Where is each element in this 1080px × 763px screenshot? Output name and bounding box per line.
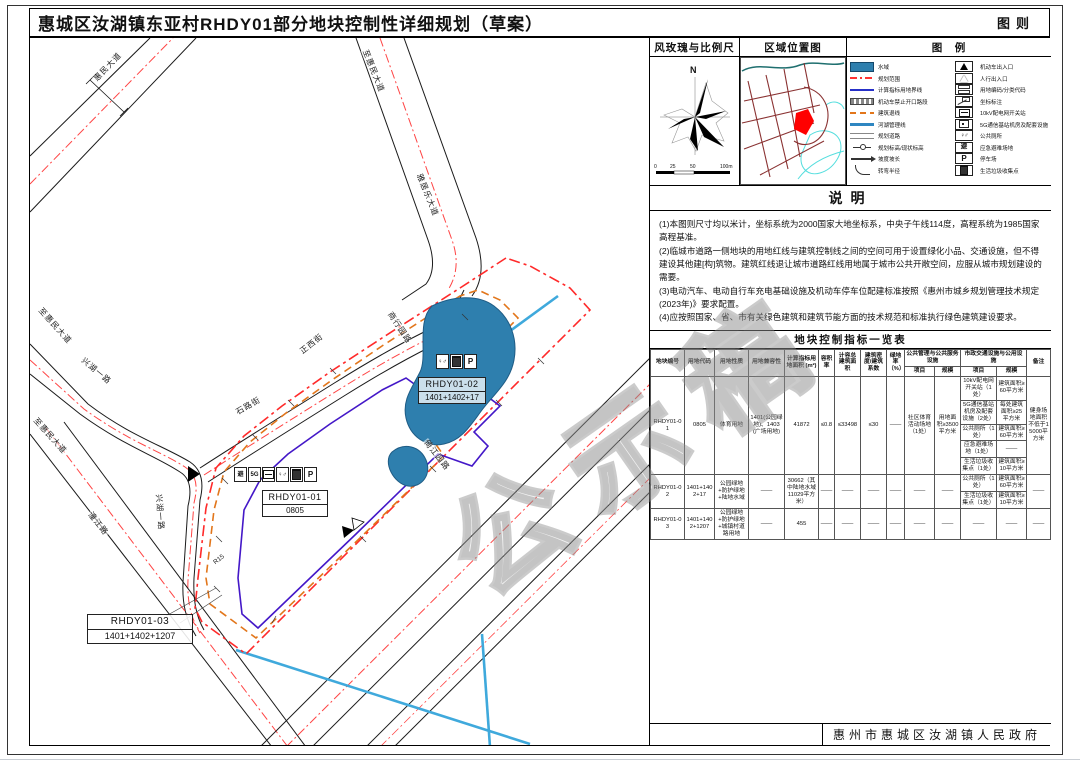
- location-map-body: [740, 57, 846, 185]
- cell-muni-item: 10kV配电网开关站（1处）: [961, 376, 997, 400]
- cell-public-scale: ——: [935, 475, 961, 509]
- legend-item: 机动车禁止开口路段: [849, 96, 948, 108]
- waste-point-icon: [951, 165, 977, 176]
- plan-map: 惠民大道 至惠民大道 雅居乐大道 至惠民大道 兴湖一路 兴湖一路 至惠民大道 潼…: [30, 38, 650, 745]
- legend-item: 5G通信基站机房及配套设施: [951, 119, 1050, 131]
- cell-green: ——: [887, 475, 905, 509]
- col-header: 计容总建筑面积: [835, 350, 861, 377]
- cell-gfa: ——: [835, 509, 861, 540]
- legend-item: 生活垃圾收集点: [951, 165, 1050, 177]
- legend-right-column: 机动车出入口 人行出入口 用地编码/分类代码 坐标标注 10kV配电网开关站 5…: [949, 57, 1051, 185]
- windrose-body: N 0: [650, 57, 739, 185]
- location-map-drawing: [740, 57, 846, 185]
- bottom-rule: [0, 759, 1080, 760]
- legend-item: P停车场: [951, 153, 1050, 165]
- page-title: 惠城区汝湖镇东亚村RHDY01部分地块控制性详细规划（草案）: [30, 10, 543, 35]
- parcel-label-rhdy01-03: RHDY01-03 1401+1402+1207: [87, 614, 193, 644]
- cell-compat: ——: [749, 509, 785, 540]
- cell-far: ≤0.8: [819, 376, 835, 474]
- col-header: 计算指标用地面积 (m²): [785, 350, 819, 377]
- footer-strip: 惠州市惠城区汝湖镇人民政府: [650, 723, 1051, 745]
- sub-header: 规模: [935, 366, 961, 376]
- cell-muni-scale: 建筑面积≥60平方米: [997, 424, 1027, 441]
- location-map-title: 区域位置图: [740, 38, 846, 57]
- col-header: 用地代码: [685, 350, 715, 377]
- 5g-station-icon: [951, 119, 977, 130]
- col-header: 地块编号: [651, 350, 685, 377]
- sheet-type-label: 图则: [997, 13, 1049, 32]
- no-opening-segment-icon: [849, 98, 875, 105]
- cell-area: 41872: [785, 376, 819, 474]
- 5g-station-icon: 5G: [248, 467, 261, 482]
- cell-muni-scale: 建筑面积≥10平方米: [997, 492, 1027, 509]
- scale-bar: 0 25 50 100m: [654, 164, 733, 174]
- legend-item: 避应急避难场地: [951, 142, 1050, 154]
- parcel-id: RHDY01-02: [419, 378, 485, 392]
- legend-item: 转弯半径: [849, 165, 948, 177]
- notes-title: 说明: [650, 186, 1051, 211]
- table-row: RHDY01-02 1401+1402+17 公园绿地+防护绿地+陆地水域 ——…: [651, 475, 1051, 492]
- facility-icons-rhdy01-02: ♀♂ P: [436, 354, 477, 369]
- cell-muni-item: 公共厕所（1处）: [961, 424, 997, 441]
- issuing-authority: 惠州市惠城区汝湖镇人民政府: [822, 724, 1051, 745]
- note-line: (4)应按照国家、省、市有关绿色建筑和建筑节能方面的技术规范和标准执行绿色建筑建…: [659, 311, 1042, 324]
- col-header: 备注: [1027, 350, 1051, 377]
- scale-tick: 50: [690, 164, 696, 170]
- sub-header: 规模: [997, 366, 1027, 376]
- road-centerline: [30, 360, 200, 633]
- right-panel: 风玫瑰与比例尺 N: [650, 38, 1051, 745]
- cell-far: ——: [819, 475, 835, 509]
- cell-remark: ——: [1027, 509, 1051, 540]
- cell-muni-scale: ——: [997, 441, 1027, 458]
- parcel-label-rhdy01-02: RHDY01-02 1401+1402+17: [418, 377, 486, 404]
- table-area: 地块编号 用地代码 用地性质 用地兼容性 计算指标用地面积 (m²) 容积率 计…: [650, 349, 1051, 723]
- setback-line-icon: [849, 112, 875, 114]
- planned-road-icon: [849, 133, 875, 139]
- public-toilet-icon: ♀♂: [951, 130, 977, 141]
- legend-item: 规划范围: [849, 73, 948, 85]
- cell-muni-item: ——: [961, 509, 997, 540]
- cell-code: 1401+1402+1207: [685, 509, 715, 540]
- panel-top-row: 风玫瑰与比例尺 N: [650, 38, 1051, 186]
- col-header: 绿地率（%）: [887, 350, 905, 377]
- cell-code: 0805: [685, 376, 715, 474]
- road-xinghu-yilu: [30, 344, 204, 636]
- legend-item: 规划道路: [849, 130, 948, 142]
- location-map-cell: 区域位置图: [740, 38, 847, 185]
- legend-item: 建筑退线: [849, 107, 948, 119]
- cell-green: ——: [887, 509, 905, 540]
- legend-item: 用地编码/分类代码: [951, 84, 1050, 96]
- power-switch-station-icon: [262, 467, 275, 482]
- legend-item: 人行出入口: [951, 73, 1050, 85]
- windrose-title: 风玫瑰与比例尺: [650, 38, 739, 57]
- sub-header: 项目: [961, 366, 997, 376]
- road-label: 兴湖一路: [154, 493, 165, 531]
- cell-remark: ——: [1027, 475, 1051, 509]
- legend-item: 机动车出入口: [951, 61, 1050, 73]
- legend-item: ♀♂公共厕所: [951, 130, 1050, 142]
- public-toilet-icon: ♀♂: [276, 467, 289, 482]
- width-dimension: [86, 76, 128, 116]
- parcel-code-icon: [951, 84, 977, 95]
- col-header-group: 公共管理与公共服务设施: [905, 350, 961, 367]
- col-header: 容积率: [819, 350, 835, 377]
- parking-icon: P: [951, 153, 977, 164]
- note-line: (2)临城市道路一侧地块的用地红线与建筑控制线之间的空间可用于设置绿化小品、交通…: [659, 245, 1042, 285]
- control-indicator-table: 地块编号 用地代码 用地性质 用地兼容性 计算指标用地面积 (m²) 容积率 计…: [650, 349, 1051, 540]
- road-centerline: [286, 384, 650, 745]
- water-swatch: [849, 62, 875, 72]
- cell-muni-item: 生活垃圾收集点（1处）: [961, 458, 997, 475]
- elevation-mark-icon: [849, 143, 875, 151]
- cell-area: 30662（其中陆地水域11029平方米）: [785, 475, 819, 509]
- windrose-drawing: N 0: [650, 57, 739, 185]
- cell-muni-item: 应急避难场地（1处）: [961, 441, 997, 458]
- cell-public-item: ——: [905, 475, 935, 509]
- cell-muni-scale: 建筑面积≥60平方米: [997, 475, 1027, 492]
- cell-compat: 1401(公园绿地)、1403(广场用地): [749, 376, 785, 474]
- parcel-id: RHDY01-03: [88, 615, 192, 630]
- col-header: 用地性质: [715, 350, 749, 377]
- parcel-id: RHDY01-01: [263, 491, 327, 505]
- table-row: RHDY01-03 1401+1402+1207 公园绿地+防护绿地+城镇村道路…: [651, 509, 1051, 540]
- scale-tick: 0: [654, 164, 657, 170]
- legend-item: 计算指标用地界线: [849, 84, 948, 96]
- cell-use: 公园绿地+防护绿地+城镇村道路用地: [715, 509, 749, 540]
- legend-title: 图 例: [847, 38, 1051, 57]
- cell-muni-scale: 建筑面积≥10平方米: [997, 458, 1027, 475]
- col-header-group: 市政交通设施与公用设施: [961, 350, 1027, 367]
- cell-muni-scale: 每处建筑面积≥25平方米: [997, 400, 1027, 424]
- cell-use: 公园绿地+防护绿地+陆地水域: [715, 475, 749, 509]
- cell-density: ——: [861, 475, 887, 509]
- cell-public-item: 社区体育活动场地（1处）: [905, 376, 935, 474]
- cell-area: 455: [785, 509, 819, 540]
- parcel-code: 0805: [263, 505, 327, 517]
- river-line-icon: [849, 123, 875, 126]
- vehicle-entry-icon: [951, 61, 977, 72]
- cell-muni-item: 公共厕所（1处）: [961, 475, 997, 492]
- legend-body: 水域 规划范围 计算指标用地界线 机动车禁止开口路段 建筑退线 河湖管理线 规划…: [847, 57, 1051, 185]
- windrose-petals: [668, 79, 726, 151]
- scale-tick: 100m: [720, 164, 733, 170]
- note-line: (3)电动汽车、电动自行车充电基础设施及机动车停车位配建标准按照《惠州市城乡规划…: [659, 285, 1042, 312]
- cell-parcel-id: RHDY01-02: [651, 475, 685, 509]
- notes-body: (1)本图则尺寸均以米计，坐标系统为2000国家大地坐标系，中央子午线114度，…: [650, 211, 1051, 331]
- cell-far: ——: [819, 509, 835, 540]
- table-header-row: 地块编号 用地代码 用地性质 用地兼容性 计算指标用地面积 (m²) 容积率 计…: [651, 350, 1051, 367]
- cell-compat: ——: [749, 475, 785, 509]
- switch-station-icon: [951, 107, 977, 118]
- cell-code: 1401+1402+17: [685, 475, 715, 509]
- parcel-code: 1401+1402+17: [419, 392, 485, 404]
- cell-use: 体育用地: [715, 376, 749, 474]
- scale-tick: 25: [670, 164, 676, 170]
- cell-gfa: ≤33498: [835, 376, 861, 474]
- legend-item: 河湖管理线: [849, 119, 948, 131]
- waste-collection-icon: [450, 354, 463, 369]
- title-bar: 惠城区汝湖镇东亚村RHDY01部分地块控制性详细规划（草案） 图则: [29, 8, 1050, 37]
- plan-boundary-line-icon: [849, 77, 875, 79]
- parcel-label-rhdy01-01: RHDY01-01 0805: [262, 490, 328, 517]
- cell-density: ——: [861, 509, 887, 540]
- cell-muni-scale: 建筑面积≥60平方米: [997, 376, 1027, 400]
- parcel-code: 1401+1402+1207: [88, 630, 192, 643]
- cell-density: ≤30: [861, 376, 887, 474]
- cell-green: ——: [887, 376, 905, 474]
- cell-gfa: ——: [835, 475, 861, 509]
- legend-item: 10kV配电网开关站: [951, 107, 1050, 119]
- note-line: (1)本图则尺寸均以米计，坐标系统为2000国家大地坐标系，中央子午线114度，…: [659, 218, 1042, 245]
- cell-public-item: ——: [905, 509, 935, 540]
- indicator-line-icon: [849, 89, 875, 91]
- legend-left-column: 水域 规划范围 计算指标用地界线 机动车禁止开口路段 建筑退线 河湖管理线 规划…: [847, 57, 949, 185]
- parking-icon: P: [304, 467, 317, 482]
- emergency-shelter-icon: 避: [951, 142, 977, 153]
- parking-icon: P: [464, 354, 477, 369]
- table-title: 地块控制指标一览表: [650, 331, 1051, 349]
- cell-muni-scale: ——: [997, 509, 1027, 540]
- legend-cell: 图 例 水域 规划范围 计算指标用地界线 机动车禁止开口路段 建筑退线 河湖管理…: [847, 38, 1051, 185]
- col-header: 用地兼容性: [749, 350, 785, 377]
- cell-parcel-id: RHDY01-01: [651, 376, 685, 474]
- cell-muni-item: 生活垃圾收集点（1处）: [961, 492, 997, 509]
- cell-remark: 健身场地面积不低于15000平方米: [1027, 376, 1051, 474]
- cell-public-scale: ——: [935, 509, 961, 540]
- table-row: RHDY01-01 0805 体育用地 1401(公园绿地)、1403(广场用地…: [651, 376, 1051, 400]
- cell-muni-item: 5G通信基站机房及配套设施（2处）: [961, 400, 997, 424]
- legend-item: 规划标高/现状标高: [849, 142, 948, 154]
- slope-length-icon: [849, 158, 875, 160]
- cell-parcel-id: RHDY01-03: [651, 509, 685, 540]
- cell-public-scale: 用地面积≥3500平方米: [935, 376, 961, 474]
- main-frame: 惠民大道 至惠民大道 雅居乐大道 至惠民大道 兴湖一路 兴湖一路 至惠民大道 潼…: [29, 37, 1050, 746]
- sub-header: 项目: [905, 366, 935, 376]
- public-toilet-icon: ♀♂: [436, 354, 449, 369]
- turning-radius-icon: [849, 165, 875, 175]
- emergency-shelter-icon: 避: [234, 467, 247, 482]
- pedestrian-entry-icon: [951, 73, 977, 84]
- windrose-cell: 风玫瑰与比例尺 N: [650, 38, 740, 185]
- legend-item: 坐标标注: [951, 96, 1050, 108]
- road-centerline: [30, 38, 173, 184]
- facility-icons-rhdy01-01: 避 5G ♀♂ P: [234, 467, 317, 482]
- north-label: N: [690, 65, 697, 75]
- col-header: 建筑密度/建筑系数: [861, 350, 887, 377]
- coordinate-mark-icon: [951, 96, 977, 107]
- plan-sheet: 惠城区汝湖镇东亚村RHDY01部分地块控制性详细规划（草案） 图则: [0, 0, 1080, 763]
- legend-item: 坡度坡长: [849, 153, 948, 165]
- waste-collection-icon: [290, 467, 303, 482]
- legend-item: 水域: [849, 61, 948, 73]
